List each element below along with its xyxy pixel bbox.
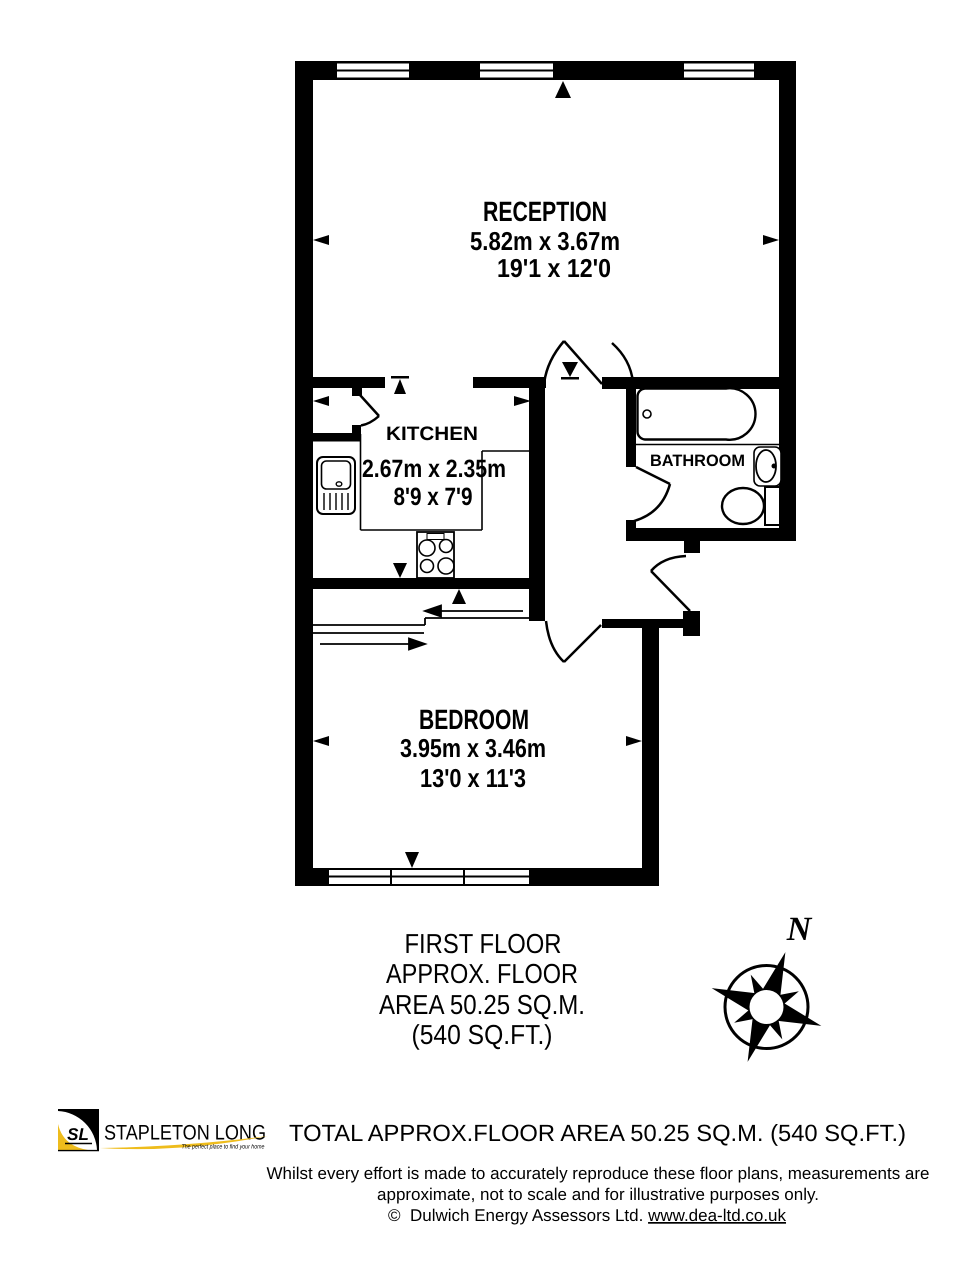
- svg-text:BEDROOM: BEDROOM: [419, 704, 529, 735]
- svg-text:SL: SL: [67, 1125, 89, 1144]
- svg-text:TOTAL APPROX.FLOOR AREA 50.25: TOTAL APPROX.FLOOR AREA 50.25 SQ.M. (540…: [289, 1120, 906, 1146]
- svg-text:APPROX. FLOOR: APPROX. FLOOR: [386, 958, 578, 989]
- svg-text:8'9 x 7'9: 8'9 x 7'9: [394, 483, 473, 511]
- svg-text:Whilst every effort is made to: Whilst every effort is made to accuratel…: [267, 1164, 930, 1183]
- svg-text:RECEPTION: RECEPTION: [483, 196, 607, 227]
- svg-text:3.95m x 3.46m: 3.95m x 3.46m: [400, 733, 546, 763]
- svg-text:N: N: [786, 911, 813, 948]
- svg-text:AREA 50.25 SQ.M.: AREA 50.25 SQ.M.: [379, 989, 585, 1020]
- svg-text:13'0 x 11'3: 13'0 x 11'3: [420, 763, 526, 793]
- svg-text:(540 SQ.FT.): (540 SQ.FT.): [412, 1019, 553, 1050]
- svg-text:approximate, not to scale and: approximate, not to scale and for illust…: [377, 1185, 819, 1204]
- svg-text:STAPLETON LONG: STAPLETON LONG: [104, 1122, 266, 1145]
- svg-text:19'1 x 12'0: 19'1 x 12'0: [497, 253, 611, 283]
- svg-text:BATHROOM: BATHROOM: [650, 452, 745, 470]
- svg-text:KITCHEN: KITCHEN: [386, 423, 478, 445]
- svg-text:FIRST FLOOR: FIRST FLOOR: [405, 928, 562, 959]
- svg-text:© Dulwich Energy Assessors Lt: © Dulwich Energy Assessors Ltd. www.dea-…: [388, 1206, 787, 1225]
- svg-text:2.67m x 2.35m: 2.67m x 2.35m: [362, 455, 506, 483]
- svg-text:The perfect place to find your: The perfect place to find your home: [182, 1144, 265, 1151]
- svg-text:5.82m x 3.67m: 5.82m x 3.67m: [470, 226, 620, 256]
